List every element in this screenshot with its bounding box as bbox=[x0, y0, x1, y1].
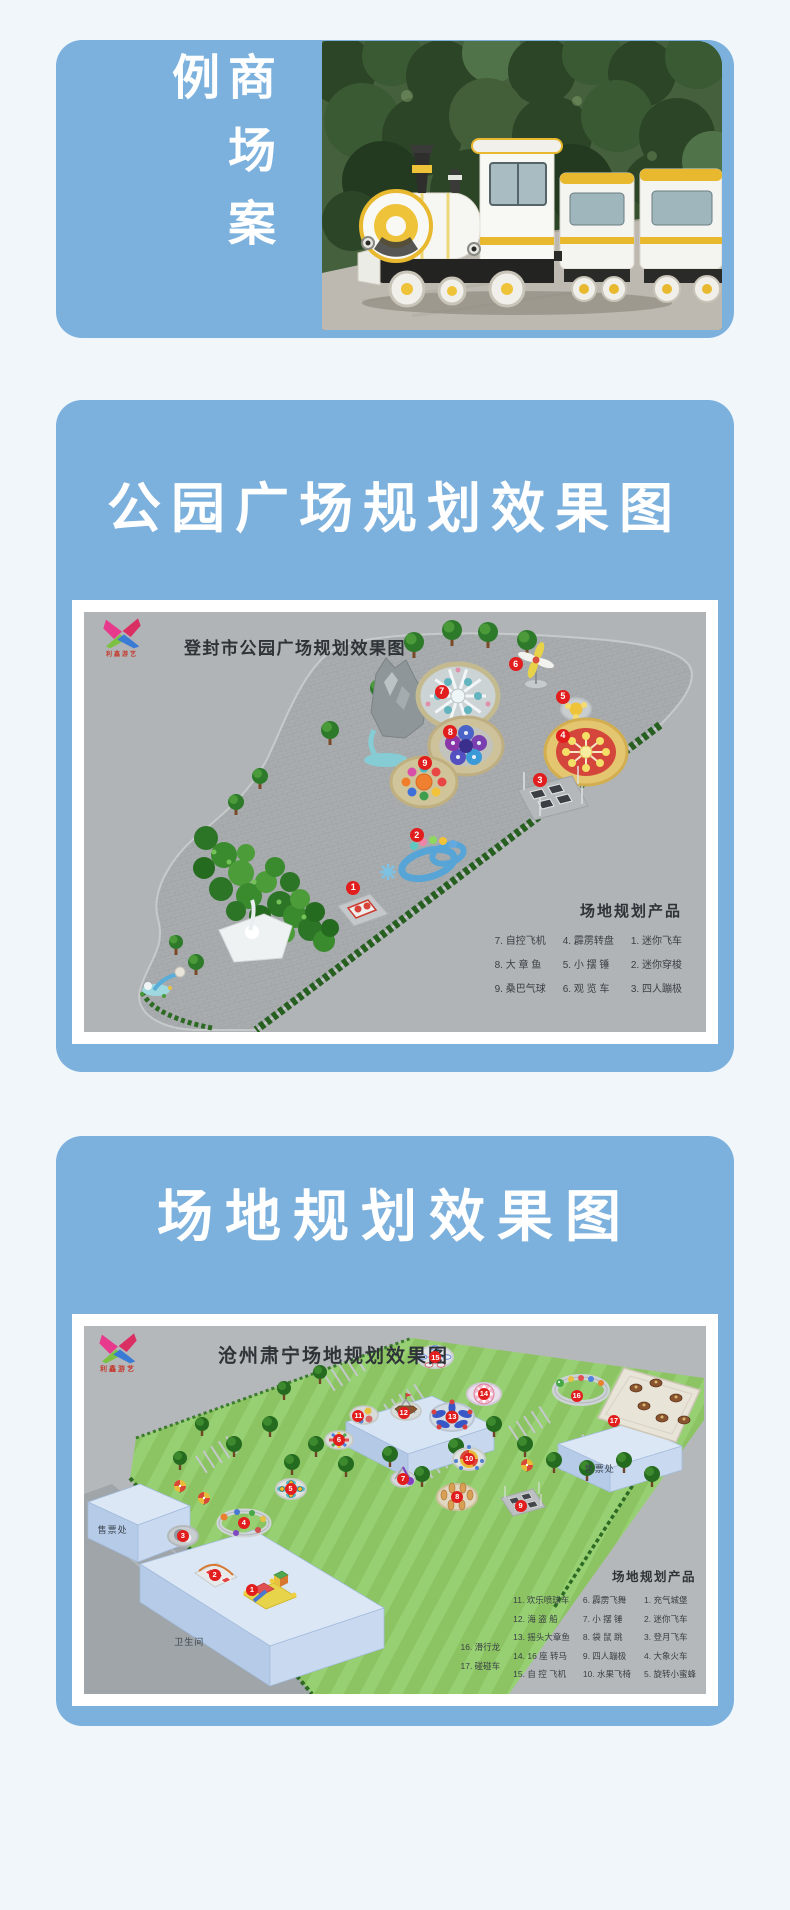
park-plan-panel: 利鑫游艺 登封市公园广场规划效果图 场地规划产品 7. 自控飞机 8. 大 章 … bbox=[72, 600, 718, 1044]
legend-item: 3. 四人蹦极 bbox=[631, 980, 682, 995]
lixin-logo-icon bbox=[100, 617, 144, 649]
site-section-title: 场地规划效果图 bbox=[56, 1136, 734, 1253]
ticket-office-label: 售票处 bbox=[98, 1523, 128, 1536]
legend-item: 15. 自 控 飞机 bbox=[513, 1668, 570, 1680]
site-plan-panel: 利鑫游艺 沧州肃宁场地规划效果图 售票处 卫生间 售票处 场地规划产品 16. … bbox=[72, 1314, 718, 1706]
legend-item: 6. 霹雳飞舞 bbox=[583, 1594, 631, 1606]
map-marker-5: 5 bbox=[556, 690, 570, 704]
map-marker-3: 3 bbox=[533, 773, 547, 787]
legend-item: 17. 碰碰车 bbox=[460, 1660, 500, 1672]
train-carriage-2 bbox=[640, 169, 722, 302]
park-plan-card: 公园广场规划效果图 bbox=[56, 400, 734, 1072]
mall-case-card: 商场案例 bbox=[56, 40, 734, 338]
site-plan-title: 沧州肃宁场地规划效果图 bbox=[218, 1341, 449, 1368]
legend-title: 场地规划产品 bbox=[460, 1566, 696, 1585]
map-marker-7: 7 bbox=[397, 1473, 409, 1485]
site-plan-legend: 场地规划产品 16. 滑行龙 17. 碰碰车 11. 欢乐喷球车 12. 海 盗… bbox=[460, 1566, 696, 1680]
legend-item: 7. 小 摆 锤 bbox=[583, 1613, 631, 1625]
lixin-logo-icon bbox=[96, 1332, 140, 1364]
map-marker-2: 2 bbox=[410, 828, 424, 842]
legend-item: 10. 水果飞椅 bbox=[583, 1668, 631, 1680]
map-marker-12: 12 bbox=[398, 1407, 410, 1419]
map-marker-13: 13 bbox=[446, 1411, 458, 1423]
train-carriage-1 bbox=[560, 173, 634, 301]
lixin-logo-text: 利鑫游艺 bbox=[100, 649, 144, 658]
legend-title: 场地规划产品 bbox=[495, 900, 682, 921]
legend-item: 8. 大 章 鱼 bbox=[495, 956, 546, 971]
legend-item: 1. 迷你飞车 bbox=[631, 932, 682, 947]
lixin-logo-text: 利鑫游艺 bbox=[96, 1364, 140, 1374]
legend-item: 1. 充气城堡 bbox=[644, 1594, 696, 1606]
map-marker-11: 11 bbox=[352, 1410, 364, 1422]
legend-item: 8. 袋 鼠 跳 bbox=[583, 1631, 631, 1643]
map-marker-6: 6 bbox=[333, 1434, 345, 1446]
map-marker-1: 1 bbox=[346, 881, 360, 895]
map-marker-8: 8 bbox=[443, 725, 457, 739]
legend-item: 2. 迷你穿梭 bbox=[631, 956, 682, 971]
ride-pili-disk bbox=[545, 719, 627, 785]
legend-item: 5. 小 摆 锤 bbox=[563, 956, 614, 971]
legend-item: 9. 桑巴气球 bbox=[495, 980, 546, 995]
map-marker-10: 10 bbox=[463, 1453, 475, 1465]
map-marker-4: 4 bbox=[556, 729, 570, 743]
mall-case-photo bbox=[322, 41, 722, 330]
legend-item: 11. 欢乐喷球车 bbox=[513, 1594, 570, 1606]
map-marker-4: 4 bbox=[238, 1517, 250, 1529]
legend-item: 2. 迷你飞车 bbox=[644, 1613, 696, 1625]
map-marker-9: 9 bbox=[515, 1500, 527, 1512]
map-marker-8: 8 bbox=[451, 1491, 463, 1503]
map-marker-15: 15 bbox=[429, 1351, 441, 1363]
park-plan-image: 利鑫游艺 登封市公园广场规划效果图 场地规划产品 7. 自控飞机 8. 大 章 … bbox=[84, 612, 706, 1032]
park-plan-legend: 场地规划产品 7. 自控飞机 8. 大 章 鱼 9. 桑巴气球 4. 霹雳转盘 … bbox=[495, 900, 682, 995]
legend-item: 9. 四人蹦极 bbox=[583, 1650, 631, 1662]
lixin-logo: 利鑫游艺 bbox=[100, 617, 144, 658]
map-marker-2: 2 bbox=[209, 1569, 221, 1581]
mall-case-title: 商场案例 bbox=[162, 52, 274, 338]
map-marker-1: 1 bbox=[246, 1584, 258, 1596]
legend-item: 7. 自控飞机 bbox=[495, 932, 546, 947]
map-marker-6: 6 bbox=[509, 657, 523, 671]
map-marker-17: 17 bbox=[608, 1415, 620, 1427]
site-plan-image: 利鑫游艺 沧州肃宁场地规划效果图 售票处 卫生间 售票处 场地规划产品 16. … bbox=[84, 1326, 706, 1694]
map-marker-3: 3 bbox=[177, 1530, 189, 1542]
map-marker-16: 16 bbox=[571, 1390, 583, 1402]
legend-item: 12. 海 盗 船 bbox=[513, 1613, 570, 1625]
map-marker-14: 14 bbox=[478, 1388, 490, 1400]
lixin-logo: 利鑫游艺 bbox=[96, 1332, 140, 1374]
legend-item: 16. 滑行龙 bbox=[460, 1641, 500, 1653]
train-photo-illustration bbox=[322, 41, 722, 330]
map-marker-5: 5 bbox=[285, 1483, 297, 1495]
legend-item: 6. 观 览 车 bbox=[563, 980, 614, 995]
park-plan-title: 登封市公园广场规划效果图 bbox=[184, 634, 406, 659]
legend-item: 4. 大象火车 bbox=[644, 1650, 696, 1662]
legend-item: 13. 摇头大章鱼 bbox=[513, 1631, 570, 1643]
legend-item: 4. 霹雳转盘 bbox=[563, 932, 614, 947]
restroom-label: 卫生间 bbox=[174, 1635, 204, 1648]
map-marker-7: 7 bbox=[435, 685, 449, 699]
legend-item: 5. 旋转小蜜蜂 bbox=[644, 1668, 696, 1680]
legend-item: 3. 登月飞车 bbox=[644, 1631, 696, 1643]
park-section-title: 公园广场规划效果图 bbox=[56, 400, 734, 543]
site-plan-card: 场地规划效果图 bbox=[56, 1136, 734, 1726]
legend-item: 14. 16 座 转马 bbox=[513, 1650, 570, 1662]
snowflake-decoration bbox=[380, 864, 396, 880]
map-marker-9: 9 bbox=[418, 756, 432, 770]
ticket-office-label: 售票处 bbox=[585, 1462, 615, 1475]
